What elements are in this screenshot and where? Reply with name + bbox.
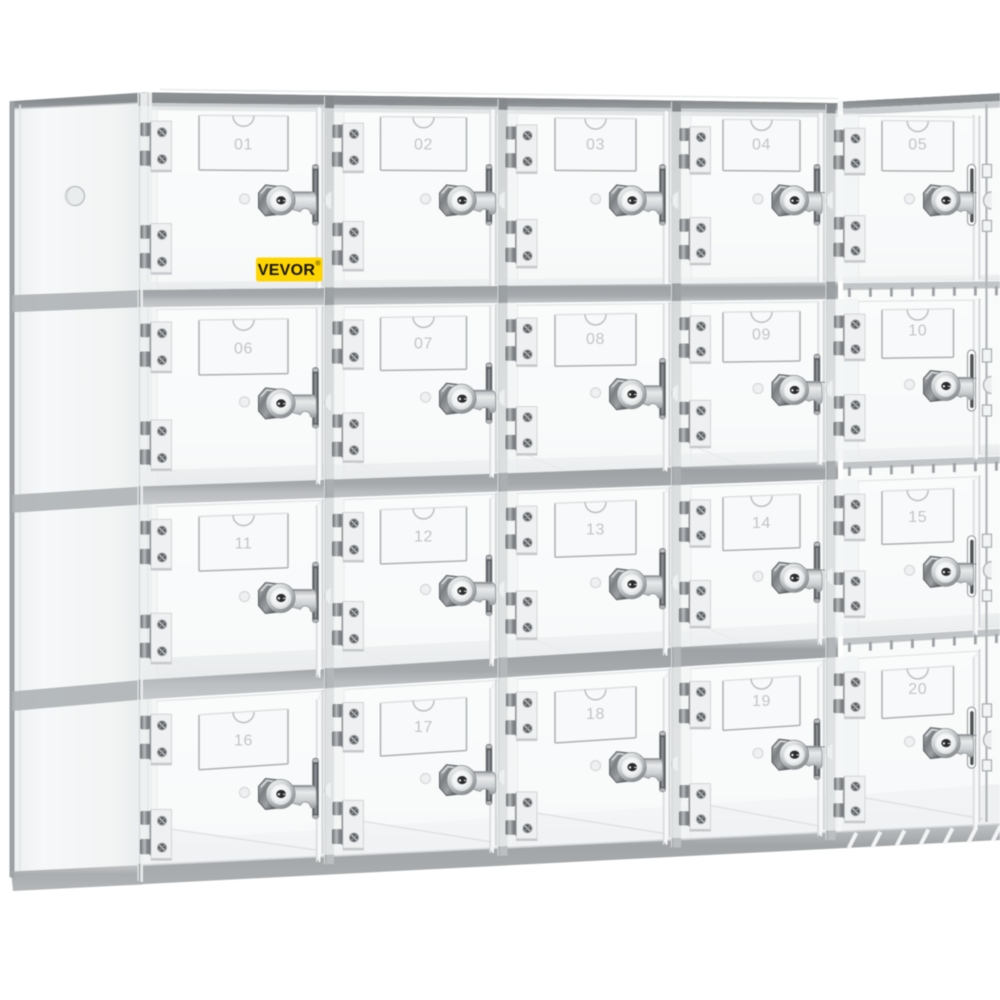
svg-text:01: 01 [234, 136, 253, 153]
svg-text:18: 18 [586, 706, 605, 723]
svg-text:16: 16 [234, 733, 253, 750]
svg-text:09: 09 [752, 327, 771, 344]
svg-text:15: 15 [908, 509, 927, 526]
svg-text:VEVOR: VEVOR [258, 262, 316, 279]
svg-text:11: 11 [235, 535, 253, 552]
svg-text:04: 04 [752, 136, 771, 153]
svg-text:08: 08 [586, 331, 605, 348]
svg-text:12: 12 [414, 528, 433, 545]
svg-text:07: 07 [414, 336, 433, 353]
svg-text:10: 10 [908, 323, 927, 340]
svg-text:14: 14 [752, 515, 771, 532]
svg-text:®: ® [316, 260, 321, 268]
svg-text:02: 02 [414, 136, 433, 153]
svg-text:13: 13 [586, 522, 605, 539]
svg-text:20: 20 [908, 681, 927, 698]
svg-text:19: 19 [752, 693, 771, 710]
svg-text:17: 17 [414, 719, 433, 736]
svg-text:03: 03 [586, 136, 605, 153]
svg-text:06: 06 [234, 340, 253, 357]
svg-text:05: 05 [908, 136, 927, 153]
